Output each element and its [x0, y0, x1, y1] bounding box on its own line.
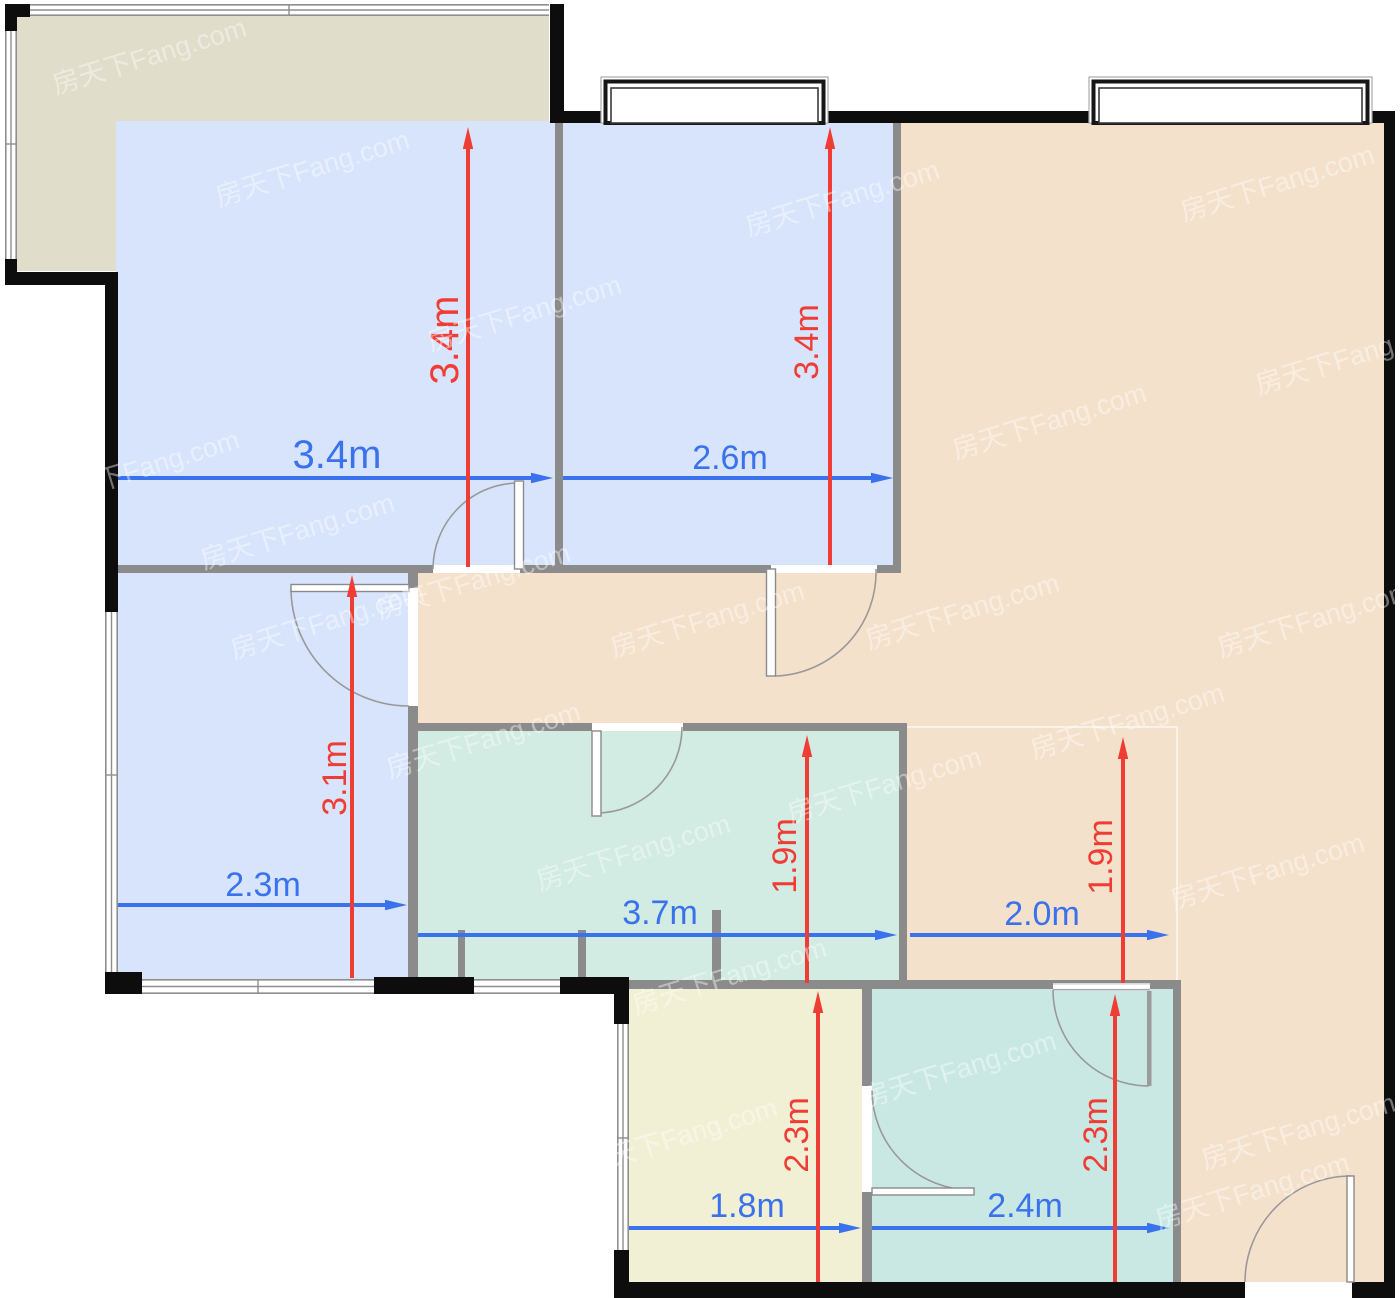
svg-text:1.9m: 1.9m	[1082, 819, 1120, 895]
svg-text:3.1m: 3.1m	[316, 740, 354, 816]
svg-text:2.4m: 2.4m	[987, 1187, 1063, 1225]
svg-text:3.4m: 3.4m	[293, 433, 382, 477]
svg-text:2.3m: 2.3m	[1077, 1097, 1115, 1173]
svg-text:2.3m: 2.3m	[225, 866, 301, 904]
svg-text:2.0m: 2.0m	[1004, 895, 1080, 933]
svg-text:1.8m: 1.8m	[709, 1187, 785, 1225]
svg-text:3.7m: 3.7m	[622, 894, 698, 932]
svg-text:3.4m: 3.4m	[788, 304, 826, 380]
svg-text:1.9m: 1.9m	[766, 818, 804, 894]
svg-text:2.3m: 2.3m	[778, 1097, 816, 1173]
svg-text:2.6m: 2.6m	[692, 439, 768, 477]
